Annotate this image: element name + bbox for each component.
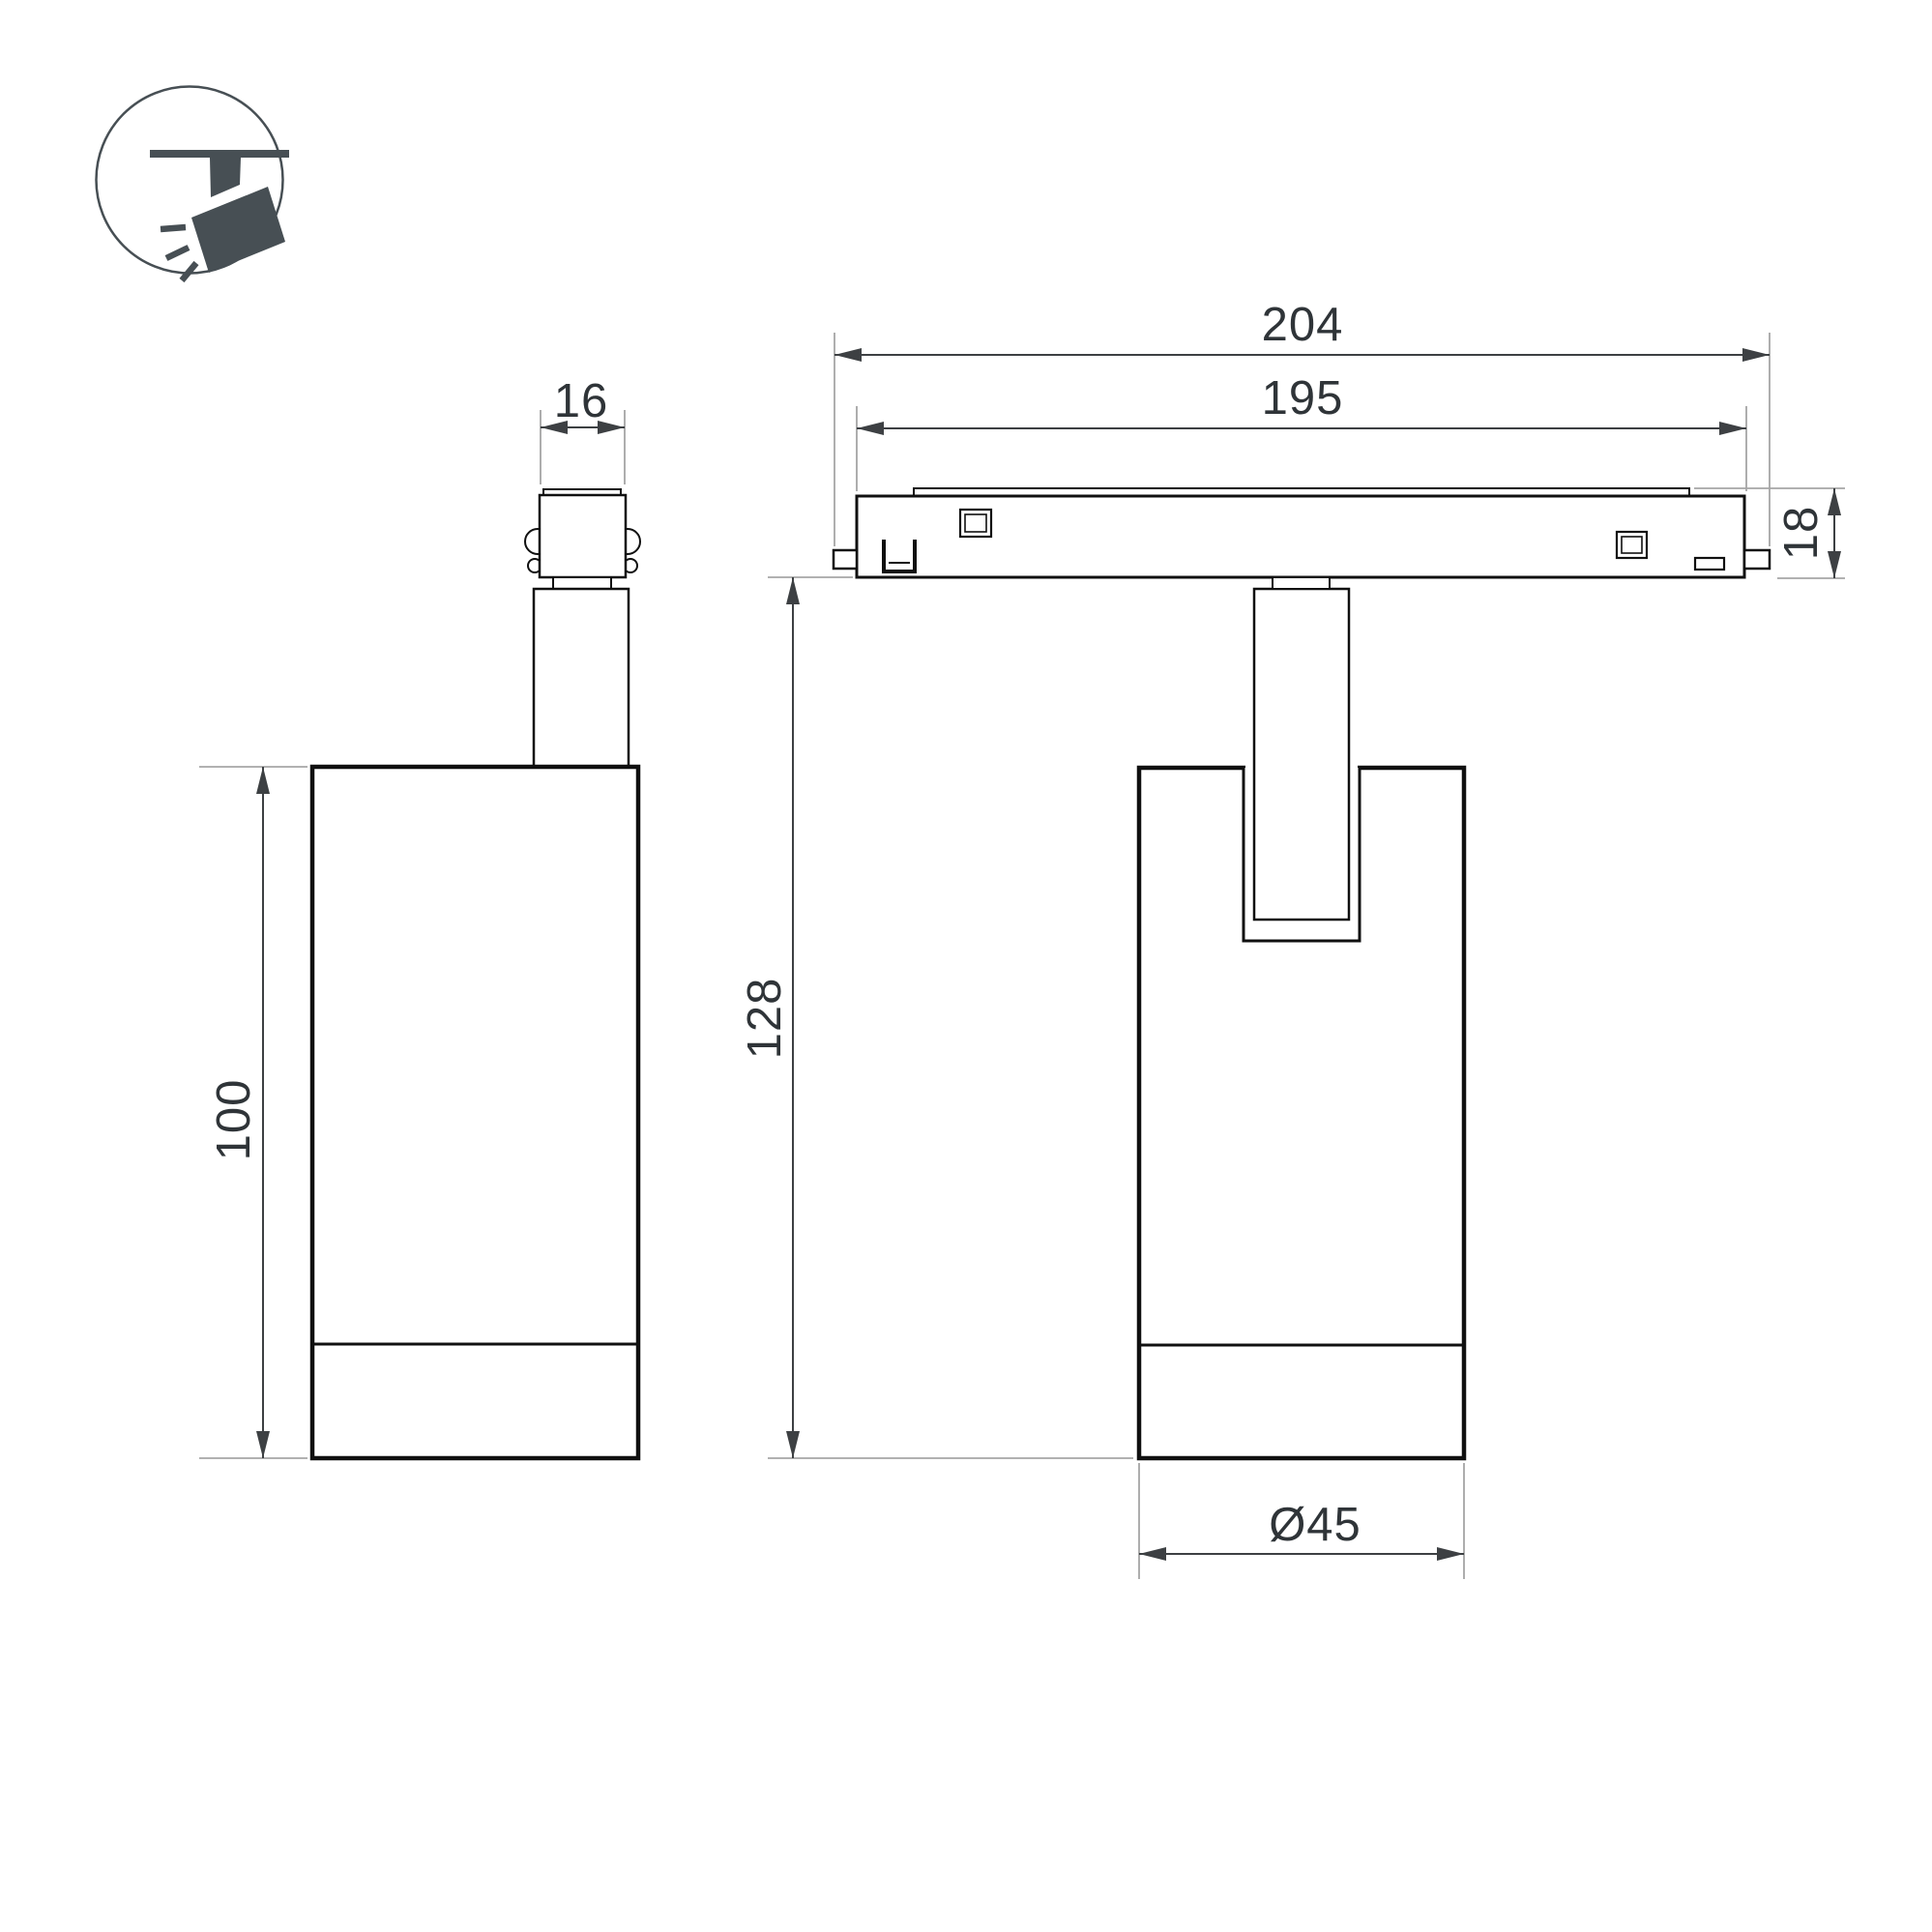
dimension-label: 195 [1262,372,1344,424]
dimension-track-inner-length: 195 [857,372,1746,491]
stem [1254,589,1349,920]
arrowhead [786,577,800,604]
icon-track-bar [150,150,289,158]
arrowhead [834,348,862,362]
track-slot-mark [1695,558,1724,570]
adapter-block [540,495,626,577]
arrowhead [857,422,884,435]
arrowhead [1719,422,1746,435]
arrowhead [256,767,270,794]
technical-drawing-page: 16 100 204 [0,0,1932,1932]
light-ray [161,227,186,229]
side-view [312,489,640,1458]
arrowhead [256,1431,270,1458]
arrowhead [1742,348,1770,362]
stem-neck [1273,577,1330,589]
dimension-drawing: 16 100 204 [0,0,1932,1932]
dimension-label: 204 [1262,299,1344,351]
lamp-body [312,767,638,1458]
stem [534,589,629,767]
dimension-label: 128 [739,978,791,1060]
arrowhead [786,1431,800,1458]
dimension-adapter-width: 16 [541,375,625,484]
track-end-tab-right [1744,550,1770,569]
arrowhead [1437,1547,1464,1561]
arrowhead [1139,1547,1166,1561]
front-view-spotlight [1139,577,1464,1458]
dimension-overall-height: 128 [739,577,1133,1458]
dimension-body-diameter: Ø45 [1139,1463,1464,1579]
arrowhead [1828,551,1841,578]
dimension-label: 16 [554,375,609,427]
dimension-body-height: 100 [199,767,307,1458]
dimension-label: Ø45 [1269,1499,1361,1551]
track-spotlight-icon [97,87,290,281]
dimension-label: 18 [1775,506,1828,561]
stem-neck [553,577,611,589]
dimension-label: 100 [208,1079,260,1161]
track-end-tab-left [834,550,857,569]
arrowhead [1828,488,1841,515]
front-view-track [834,488,1770,577]
